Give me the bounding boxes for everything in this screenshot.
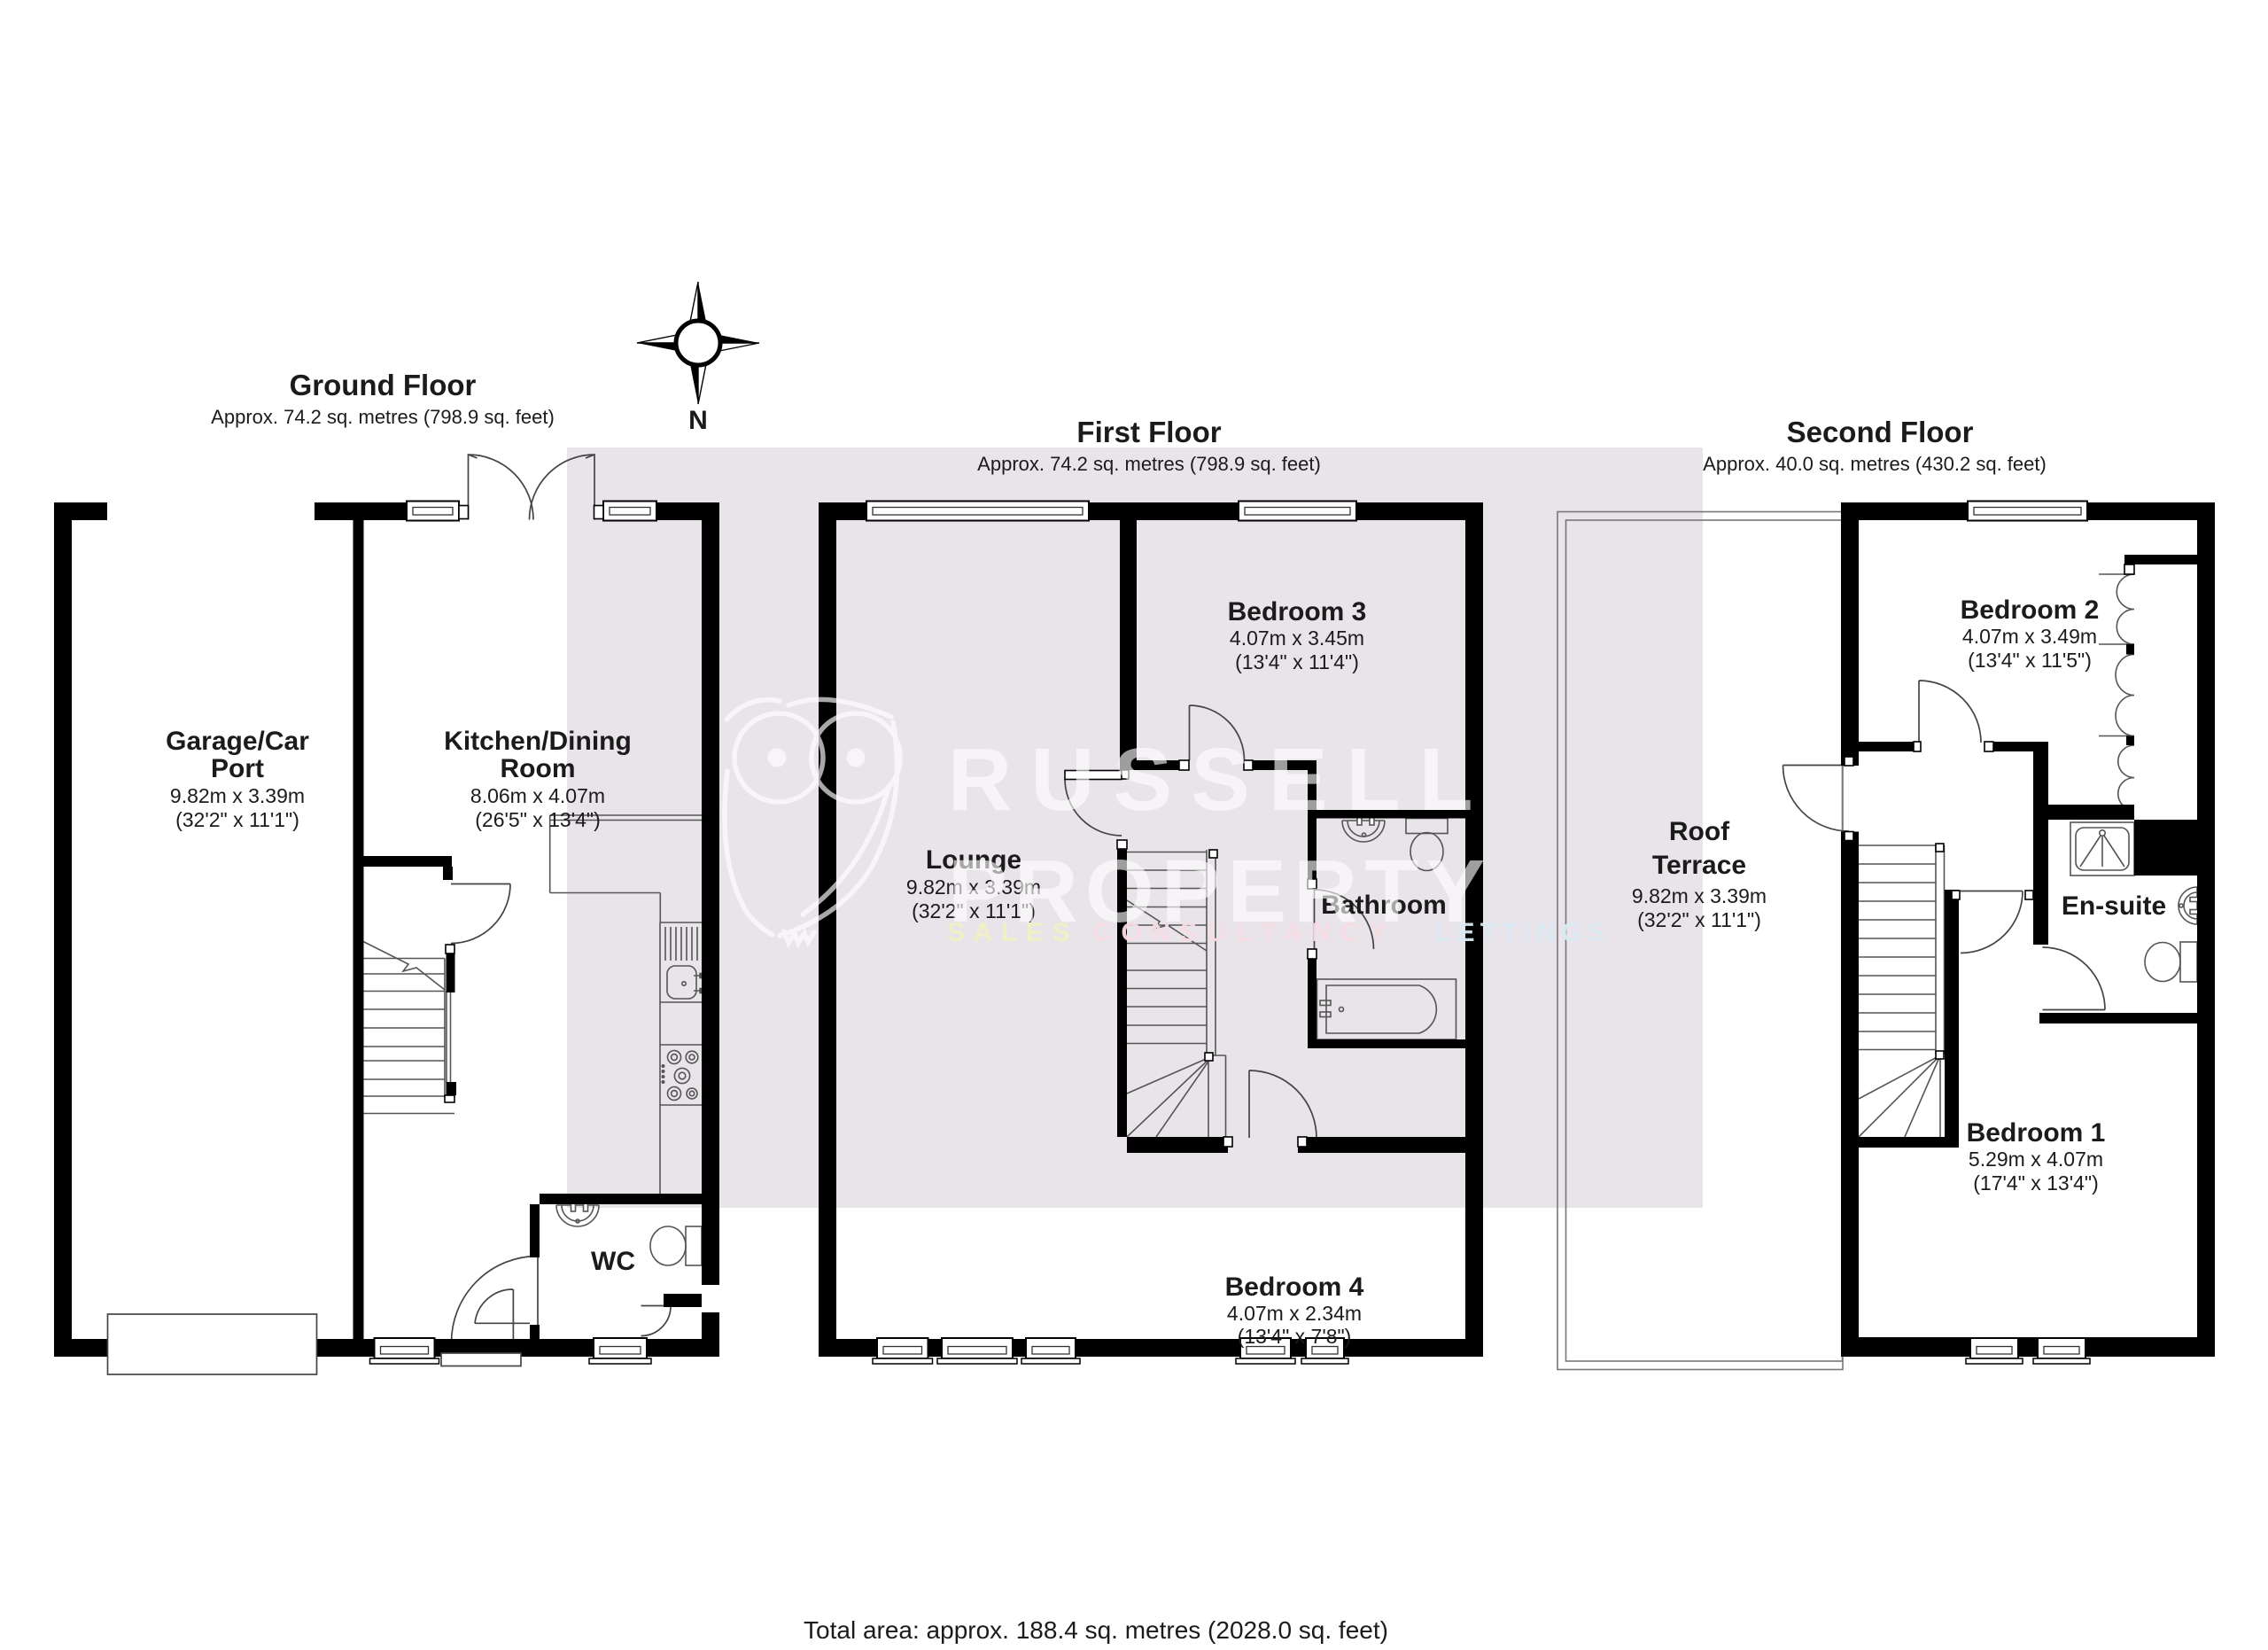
- svg-text:Approx. 40.0 sq. metres (430.2: Approx. 40.0 sq. metres (430.2 sq. feet): [1703, 453, 2047, 475]
- svg-text:Approx. 74.2 sq. metres (798.9: Approx. 74.2 sq. metres (798.9 sq. feet): [211, 406, 555, 428]
- svg-text:4.07m x 3.49m: 4.07m x 3.49m: [1962, 625, 2097, 648]
- svg-text:LETTINGS: LETTINGS: [1435, 918, 1611, 947]
- svg-text:(32'2" x 11'1"): (32'2" x 11'1"): [1637, 908, 1761, 931]
- svg-text:(32'2" x 11'1"): (32'2" x 11'1"): [175, 808, 299, 831]
- svg-text:RUSSELL: RUSSELL: [948, 730, 1492, 829]
- svg-text:Total area: approx. 188.4 sq.: Total area: approx. 188.4 sq. metres (20…: [804, 1616, 1388, 1644]
- svg-text:Approx. 74.2 sq. metres (798.9: Approx. 74.2 sq. metres (798.9 sq. feet): [977, 453, 1321, 475]
- svg-text:(13'4" x 11'5"): (13'4" x 11'5"): [1968, 649, 2092, 672]
- svg-text:9.82m x 3.39m: 9.82m x 3.39m: [1632, 884, 1767, 907]
- svg-text:Bedroom 4: Bedroom 4: [1225, 1273, 1364, 1302]
- svg-text:Roof: Roof: [1669, 817, 1730, 846]
- svg-text:Room: Room: [501, 754, 576, 783]
- svg-text:Bedroom 3: Bedroom 3: [1228, 597, 1367, 627]
- svg-text:Port: Port: [211, 754, 264, 783]
- svg-text:WC: WC: [591, 1247, 635, 1276]
- svg-text:Garage/Car: Garage/Car: [166, 727, 309, 756]
- svg-text:8.06m x 4.07m: 8.06m x 4.07m: [470, 784, 605, 807]
- svg-text:(17'4" x 13'4"): (17'4" x 13'4"): [1973, 1171, 2098, 1195]
- svg-text:En-suite: En-suite: [2062, 891, 2166, 921]
- svg-text:4.07m x 2.34m: 4.07m x 2.34m: [1227, 1302, 1362, 1325]
- svg-text:N: N: [688, 406, 708, 435]
- svg-text:SALES: SALES: [947, 918, 1079, 947]
- svg-text:(13'4" x 7'8"): (13'4" x 7'8"): [1238, 1325, 1352, 1348]
- svg-text:(26'5" x 13'4"): (26'5" x 13'4"): [475, 808, 600, 831]
- svg-text:5.29m x 4.07m: 5.29m x 4.07m: [1969, 1148, 2103, 1171]
- svg-text:Ground Floor: Ground Floor: [290, 369, 477, 401]
- svg-text:First Floor: First Floor: [1076, 416, 1221, 448]
- svg-text:Bedroom 2: Bedroom 2: [1961, 595, 2100, 625]
- svg-text:4.07m x 3.45m: 4.07m x 3.45m: [1230, 627, 1364, 650]
- svg-text:Kitchen/Dining: Kitchen/Dining: [444, 727, 632, 756]
- svg-text:(13'4" x 11'4"): (13'4" x 11'4"): [1235, 650, 1359, 673]
- svg-text:Second Floor: Second Floor: [1787, 416, 1974, 448]
- svg-text:CONSULTANCY: CONSULTANCY: [1092, 918, 1396, 947]
- svg-text:Terrace: Terrace: [1652, 851, 1746, 880]
- svg-text:Bedroom 1: Bedroom 1: [1967, 1118, 2106, 1148]
- svg-text:9.82m x 3.39m: 9.82m x 3.39m: [170, 784, 305, 807]
